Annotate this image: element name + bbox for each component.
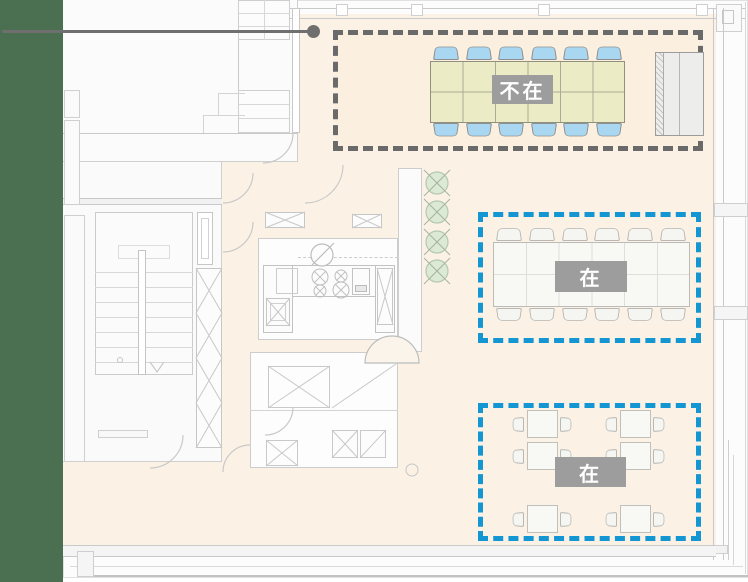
wall-mullion: [538, 4, 550, 16]
chair: [627, 308, 653, 321]
cabinet-divider: [679, 53, 680, 135]
chair: [513, 449, 524, 464]
wall-step-shape: [203, 115, 245, 133]
wall-column-strip: [398, 168, 422, 352]
chair: [498, 123, 524, 136]
chair: [433, 123, 459, 136]
chair: [529, 308, 555, 321]
desk-table: [620, 410, 651, 438]
storage-box-x: [266, 440, 298, 466]
wall-interior-band: [63, 198, 222, 205]
wall-bottom-line: [70, 566, 743, 567]
plan-edge-bottom: [80, 575, 748, 577]
wall-mullion: [696, 4, 708, 16]
plan-edge-right: [745, 2, 746, 574]
wall-mullion: [336, 4, 348, 16]
annotation-pointer-line: [2, 30, 314, 33]
wall-top-inner: [258, 18, 745, 19]
chair: [498, 47, 524, 60]
sidebar-panel: [0, 0, 63, 582]
chair: [560, 417, 571, 432]
window-grid-divider: [264, 0, 265, 40]
chair: [562, 308, 588, 321]
wall-mullion: [411, 4, 423, 16]
occupancy-floorplan-screen: 不在 在 在: [0, 0, 748, 582]
kitchen-cabinet: [276, 268, 298, 294]
chair: [531, 123, 557, 136]
zone-meeting-top[interactable]: 不在: [333, 30, 703, 151]
wall-tab-right: [714, 306, 748, 320]
fixture-box: [332, 430, 358, 458]
wall-left-strip: [64, 215, 85, 462]
zone-meeting-middle[interactable]: 在: [478, 212, 701, 343]
chair: [594, 228, 620, 241]
chair: [606, 512, 617, 527]
shelf: [98, 430, 148, 438]
stair-rail: [138, 250, 146, 375]
chair: [596, 47, 622, 60]
hatched-wall-box: [352, 214, 382, 228]
chair: [653, 512, 664, 527]
chair: [433, 47, 459, 60]
chair: [562, 228, 588, 241]
chair: [563, 123, 589, 136]
kitchen-cabinet-inner: [270, 303, 286, 321]
chair: [594, 308, 620, 321]
annotation-pointer-dot: [307, 25, 320, 38]
oven-drawer: [355, 285, 367, 292]
chair: [529, 228, 555, 241]
status-badge-absent: 不在: [492, 75, 553, 104]
corner-step-line: [728, 440, 729, 560]
chair: [531, 47, 557, 60]
cabinet: [655, 52, 704, 136]
storage-divider: [250, 410, 398, 411]
wall-step-shape: [218, 93, 245, 115]
storage-box-x: [268, 366, 330, 408]
desk-table: [527, 442, 558, 470]
window-strip: [292, 8, 300, 133]
chair: [653, 449, 664, 464]
counter-dashed-line: [298, 257, 398, 258]
rail-post: [117, 357, 123, 363]
status-badge-present: 在: [555, 261, 627, 292]
wall-top-outer: [258, 8, 745, 9]
status-badge-present: 在: [555, 457, 626, 487]
hatched-wall-strip: [196, 268, 222, 448]
desk-table: [527, 410, 558, 438]
wall-tab-right: [714, 203, 748, 217]
wall-niche: [64, 120, 80, 205]
chair: [496, 308, 522, 321]
chair: [513, 512, 524, 527]
desk-table: [527, 505, 558, 533]
hatched-wall-box: [265, 212, 305, 228]
chair: [606, 417, 617, 432]
chair: [563, 47, 589, 60]
chair: [466, 47, 492, 60]
corner-step-line: [733, 455, 734, 565]
chair: [653, 417, 664, 432]
chair: [466, 123, 492, 136]
cabinet-hatch: [656, 53, 664, 135]
pillar: [77, 551, 94, 577]
wall-interior: [63, 133, 298, 134]
chair: [660, 228, 686, 241]
desk-table: [620, 505, 651, 533]
wall-right-outer: [713, 8, 714, 560]
wall-bottom-band: [63, 545, 716, 557]
chair: [660, 308, 686, 321]
wall-niche: [64, 90, 80, 118]
chair: [596, 123, 622, 136]
chair: [513, 417, 524, 432]
window-grid-lower: [238, 90, 290, 133]
chair: [496, 228, 522, 241]
door-frame-inner: [201, 218, 209, 259]
wall-right-inner: [723, 8, 724, 560]
fixture-box: [360, 430, 386, 458]
chair: [627, 228, 653, 241]
zone-desks-bottom[interactable]: 在: [478, 403, 701, 541]
chair: [560, 512, 571, 527]
kitchen-cabinet-x: [377, 268, 393, 325]
